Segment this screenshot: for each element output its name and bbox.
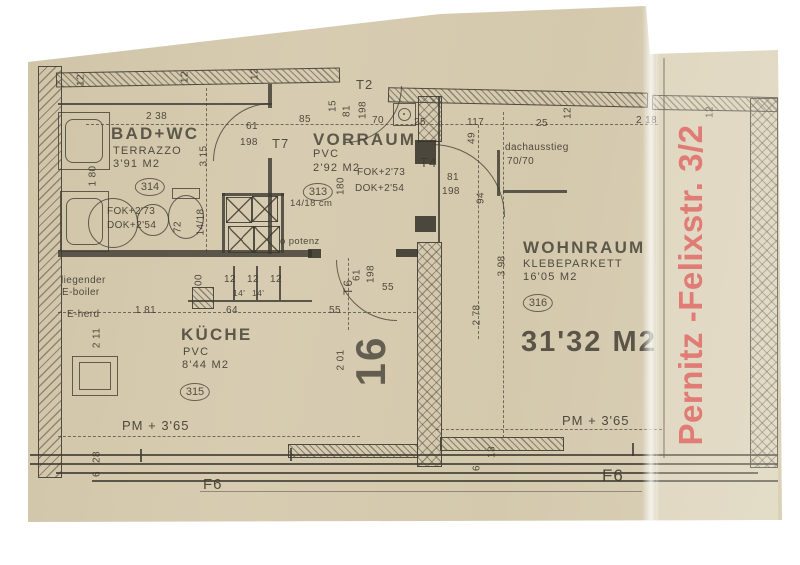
dim-label: 25 xyxy=(414,117,426,128)
door-label-t4: T4 xyxy=(420,155,437,170)
facade-line xyxy=(30,454,778,456)
roof-hatch-bracket xyxy=(497,150,500,196)
dim-label: 00 xyxy=(194,274,205,286)
stove-inner xyxy=(79,362,111,390)
pm-line-right xyxy=(436,429,662,430)
dim-label: 85 xyxy=(299,114,311,125)
room-floor-kueche: PVC xyxy=(183,346,209,358)
dim-label: 1 80 xyxy=(88,165,99,186)
fok-label-vorraum: FOK+2'73 xyxy=(357,167,405,178)
boiler-label-2: E-boiler xyxy=(62,287,100,298)
dim-label: 198 xyxy=(240,137,258,148)
dim-label: 25 xyxy=(536,118,548,129)
dim-label: 12 xyxy=(270,274,282,285)
dim-label: 6 xyxy=(92,471,103,477)
dim-label: 55 xyxy=(382,282,394,293)
facade-line xyxy=(92,480,778,482)
counter-line xyxy=(188,300,312,302)
dim-label: 2 38 xyxy=(146,111,167,122)
potenz-label: o potenz xyxy=(280,236,320,247)
dim-label: 14' xyxy=(252,288,264,298)
room-tag-bad: 314 xyxy=(135,178,165,196)
dim-label: 12 xyxy=(180,71,191,83)
pm-label-left: PM + 3'65 xyxy=(122,418,190,433)
address-stamp: Pernitz -Felixstr. 3/2 xyxy=(672,125,710,446)
door-label-t6: T6 xyxy=(341,279,355,295)
dim-label: 94 xyxy=(476,192,487,204)
dim-label: 12 xyxy=(76,74,87,86)
door-label-t2: T2 xyxy=(356,77,373,92)
shaft-symbol xyxy=(252,196,278,222)
pm-label-right: PM + 3'65 xyxy=(562,413,630,428)
door-jamb xyxy=(396,249,418,257)
dim-label: 49 xyxy=(467,132,478,144)
dim-label: 3 15 xyxy=(199,145,210,166)
dim-label: 28 xyxy=(92,451,103,463)
dim-label: 198 xyxy=(358,101,369,119)
wall-mid-vertical xyxy=(417,242,442,467)
dim-label: 12 xyxy=(224,274,236,285)
door-swing-arc-t7 xyxy=(213,103,271,161)
bathtub-inner xyxy=(65,119,103,163)
room-area-kueche: 8'44 M2 xyxy=(182,359,229,371)
dim-label: 2 18 xyxy=(636,115,657,126)
shaft-symbol xyxy=(228,226,254,253)
dim-label: 2 01 xyxy=(336,349,347,370)
door-jamb xyxy=(308,249,321,258)
window-label-f6-right: F6 xyxy=(602,466,624,486)
room-name-vorraum: VORRAUM xyxy=(313,130,416,150)
dim-label: 2 11 xyxy=(92,328,103,348)
door-swing-arc-t4 xyxy=(432,144,505,217)
floor-plan-document: BAD+WC TERRAZZO 3'91 M2 FOK+2'73 DOK+2'5… xyxy=(0,0,800,565)
facade-line xyxy=(200,491,642,492)
facade-line xyxy=(30,463,778,465)
room-area-wohnraum: 16'05 M2 xyxy=(523,271,578,283)
room-area-bad: 3'91 M2 xyxy=(113,158,160,170)
dim-label: 61 xyxy=(246,121,258,132)
facade-tick xyxy=(140,449,142,462)
facade-tick xyxy=(632,443,634,456)
dim-label: 12 xyxy=(250,68,261,80)
dim-label: 12 xyxy=(247,274,259,285)
sink-fixture xyxy=(192,287,214,309)
dim-label: 14' xyxy=(233,288,245,298)
roof-hatch-bracket xyxy=(503,190,567,193)
dim-label: 72 xyxy=(173,221,184,233)
pm-line-left xyxy=(58,436,360,437)
wall-bad-north-inner xyxy=(58,103,272,105)
wall-right xyxy=(750,98,778,468)
fok-label-bad: FOK+2'73 xyxy=(107,206,155,217)
scanned-paper: BAD+WC TERRAZZO 3'91 M2 FOK+2'73 DOK+2'5… xyxy=(0,0,800,565)
room-area-vorraum: 2'92 M2 xyxy=(313,162,360,174)
dim-label: 70 xyxy=(372,115,384,126)
dim-label: 117 xyxy=(467,117,484,128)
room-tag-wohnraum: 316 xyxy=(523,294,553,312)
room-floor-bad: TERRAZZO xyxy=(113,145,182,157)
dim-label: 3 98 xyxy=(497,255,508,276)
dim-label: 13 xyxy=(487,446,498,458)
core-wall xyxy=(222,193,225,253)
number-stamp: 16 xyxy=(347,336,395,387)
dim-label: 198 xyxy=(442,186,460,197)
roof-hatch-size: 70/70 xyxy=(507,156,534,167)
dim-label: 15 xyxy=(328,100,339,112)
dim-label: 12 xyxy=(705,106,716,118)
duct-label: 14/18 cm xyxy=(290,198,332,209)
dok-label-vorraum: DOK+2'54 xyxy=(355,183,404,194)
dim-label: 198 xyxy=(366,265,377,283)
room-name-wohnraum: WOHNRAUM xyxy=(523,238,645,258)
total-area-label: 31'32 M2 xyxy=(521,326,657,359)
shaft-symbol xyxy=(226,197,252,223)
dim-label: 2 78 xyxy=(472,304,483,325)
dim-label: 64 xyxy=(226,305,238,316)
roof-hatch-label: dachausstieg xyxy=(505,142,569,153)
dim-label: 12 xyxy=(563,107,574,119)
room-floor-vorraum: PVC xyxy=(313,148,339,160)
dim-label: 1 81 xyxy=(135,305,156,316)
stove-label: E-herd xyxy=(67,309,99,320)
boiler-label-1: liegender xyxy=(61,275,106,286)
window-label-f6-left: F6 xyxy=(203,476,223,493)
dim-label: 6 xyxy=(472,465,483,471)
dim-label: 55 xyxy=(329,305,341,316)
toilet-cistern xyxy=(172,188,200,199)
wall-bottom-right xyxy=(440,437,564,451)
shaft-symbol xyxy=(254,226,280,253)
fold-crease xyxy=(642,6,660,522)
dim-label: 61 xyxy=(352,269,363,281)
room-floor-wohnraum: KLEBEPARKETT xyxy=(523,258,623,270)
room-tag-kueche: 315 xyxy=(180,383,210,401)
dim-label: 180 xyxy=(336,177,347,195)
facade-tick xyxy=(290,448,292,461)
fold-edge-line xyxy=(663,58,665,458)
dim-label: 81 xyxy=(447,172,459,183)
door-label-t7: T7 xyxy=(272,136,289,151)
facade-line xyxy=(56,472,758,474)
dim-label: 81 xyxy=(342,105,353,117)
room-name-kueche: KÜCHE xyxy=(181,325,252,345)
wall-top-left xyxy=(56,68,340,88)
dim-label: 14/18 xyxy=(196,208,207,235)
chimney-dot xyxy=(403,113,405,115)
room-name-bad: BAD+WC xyxy=(111,124,199,144)
dok-label-bad: DOK+2'54 xyxy=(107,220,156,231)
wall-stub xyxy=(415,216,436,232)
